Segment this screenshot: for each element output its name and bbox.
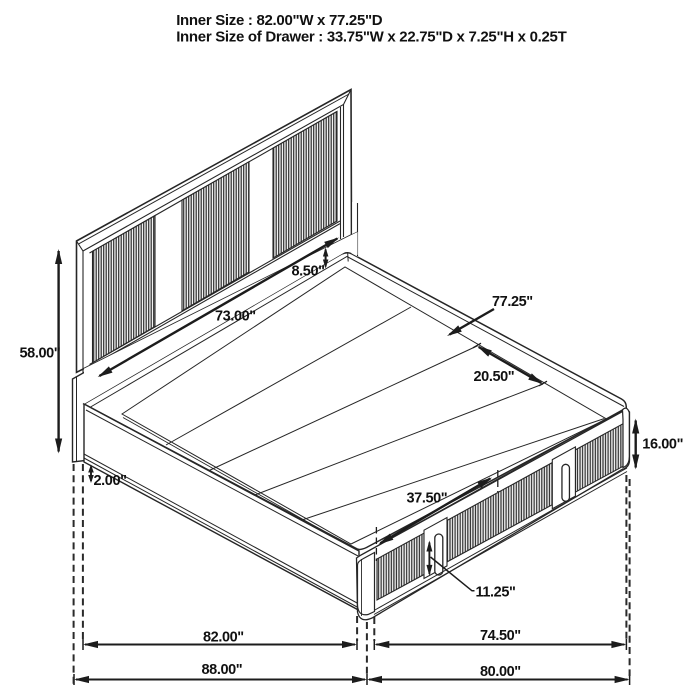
svg-text:8.50": 8.50" — [292, 264, 325, 280]
svg-text:80.00": 80.00" — [480, 664, 521, 680]
svg-text:58.00": 58.00" — [20, 346, 61, 362]
svg-text:74.50": 74.50" — [480, 628, 521, 644]
svg-text:16.00": 16.00" — [642, 436, 683, 452]
svg-text:37.50": 37.50" — [407, 491, 448, 507]
svg-text:20.50": 20.50" — [474, 369, 515, 385]
svg-text:77.25": 77.25" — [492, 294, 533, 310]
svg-text:88.00": 88.00" — [202, 662, 243, 678]
svg-text:82.00": 82.00" — [203, 630, 244, 646]
svg-text:2.00": 2.00" — [94, 473, 127, 489]
svg-text:Inner Size : 82.00"W x 77.25"D: Inner Size : 82.00"W x 77.25"D — [176, 12, 383, 29]
svg-text:Inner Size of Drawer : 33.75"W: Inner Size of Drawer : 33.75"W x 22.75"D… — [176, 29, 566, 46]
svg-text:11.25": 11.25" — [476, 584, 516, 600]
svg-text:73.00": 73.00" — [215, 309, 256, 325]
